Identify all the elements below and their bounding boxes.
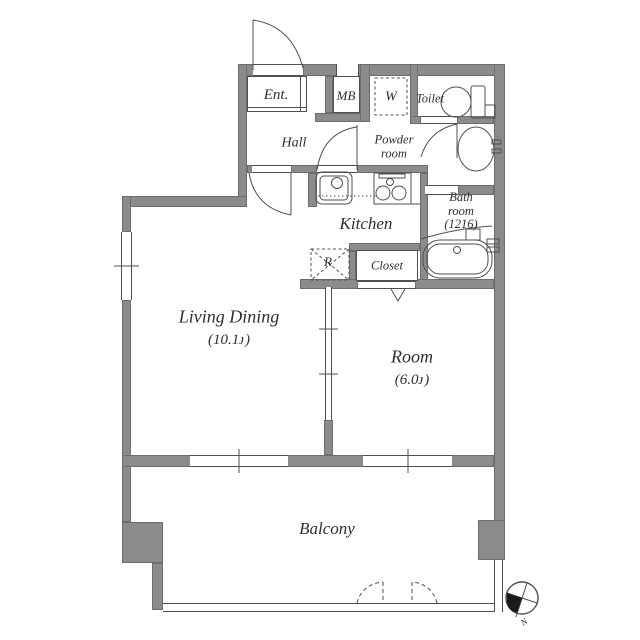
hall-kitchen-door-opening bbox=[317, 165, 357, 173]
wall bbox=[122, 196, 247, 207]
balcony-rail-right bbox=[494, 560, 503, 612]
livingdining-balcony-window bbox=[190, 455, 288, 467]
stove-icon bbox=[374, 173, 420, 204]
washing-machine-label: W bbox=[385, 89, 397, 104]
entrance-door-opening bbox=[253, 64, 303, 76]
compass-icon: N bbox=[506, 582, 538, 628]
toilet-fixture-icon bbox=[441, 86, 495, 118]
wall bbox=[122, 300, 131, 522]
toilet-label: Toilet bbox=[416, 92, 444, 106]
wall bbox=[152, 563, 163, 610]
plan-symbols: N bbox=[0, 0, 640, 640]
kitchen-label: Kitchen bbox=[340, 215, 393, 233]
wall bbox=[303, 64, 495, 76]
wall bbox=[122, 196, 131, 232]
powder-room-label: Powder room bbox=[375, 134, 414, 161]
balcony-rail-bottom bbox=[163, 603, 503, 612]
wall bbox=[478, 520, 505, 560]
meter-box-label: MB bbox=[337, 89, 356, 103]
compass-north-label: N bbox=[518, 616, 530, 629]
bath-room-label: Bath room (1216) bbox=[444, 191, 477, 232]
closet-fold-marker bbox=[391, 289, 405, 301]
bath-room-label-line1: Bath bbox=[444, 191, 477, 205]
balcony-partition-doors-icon bbox=[357, 582, 437, 603]
wall bbox=[238, 64, 247, 207]
wall bbox=[360, 64, 370, 122]
wall bbox=[291, 165, 317, 173]
wall bbox=[324, 420, 333, 455]
wall bbox=[357, 165, 428, 173]
room-label: Room bbox=[391, 347, 433, 366]
wall bbox=[415, 279, 494, 289]
window-tick-marks bbox=[114, 266, 408, 473]
refrigerator-label: R bbox=[324, 255, 332, 269]
entrance-door-icon bbox=[253, 20, 303, 70]
hall-livingdining-door-opening bbox=[252, 165, 291, 173]
west-window bbox=[121, 232, 132, 300]
closet-label: Closet bbox=[371, 259, 403, 273]
hall-label: Hall bbox=[282, 135, 307, 150]
floor-plan: N Ent. Hall MB W Toilet Powder room Bath… bbox=[0, 0, 640, 640]
kitchen-sink-icon bbox=[316, 172, 378, 204]
balcony-label: Balcony bbox=[299, 520, 355, 538]
bathtub-icon bbox=[421, 226, 499, 278]
bath-room-label-line2: room bbox=[444, 204, 477, 218]
powder-room-label-line2: room bbox=[375, 147, 414, 161]
wall bbox=[494, 64, 505, 560]
toilet-door-opening bbox=[421, 116, 457, 124]
closet-opening bbox=[358, 281, 415, 289]
wall bbox=[308, 173, 317, 207]
wall bbox=[122, 522, 163, 563]
room-area-label: (6.0ᴊ) bbox=[395, 372, 429, 388]
partition-sliding-door bbox=[325, 287, 332, 420]
hall-livingdining-door-icon bbox=[249, 173, 291, 215]
powder-room-label-line1: Powder bbox=[375, 134, 414, 148]
entrance-label: Ent. bbox=[264, 87, 289, 103]
wall bbox=[457, 116, 494, 124]
living-dining-area-label: (10.1ᴊ) bbox=[208, 332, 250, 348]
living-dining-label: Living Dining bbox=[179, 307, 280, 326]
wall bbox=[349, 251, 356, 280]
entrance-step-line bbox=[247, 107, 307, 108]
entrance-step-line bbox=[300, 76, 301, 112]
bath-room-label-line3: (1216) bbox=[444, 218, 477, 232]
room-balcony-window bbox=[363, 455, 452, 467]
hall-kitchen-door-icon bbox=[317, 125, 357, 170]
wall bbox=[410, 116, 421, 124]
toilet-door-icon bbox=[421, 124, 457, 158]
wall bbox=[325, 76, 333, 113]
